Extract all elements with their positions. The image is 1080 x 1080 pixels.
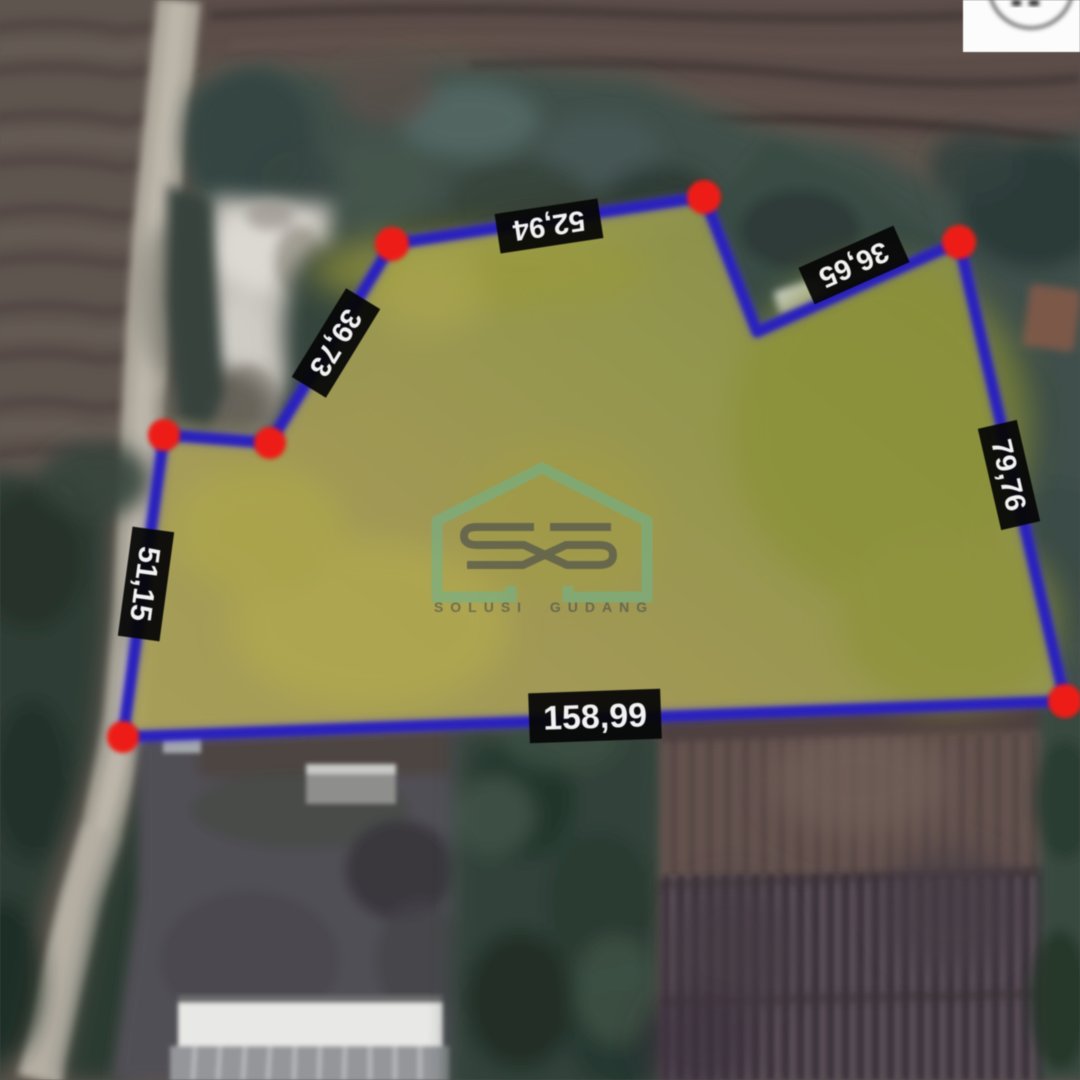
svg-text:SOLUSI: SOLUSI bbox=[434, 599, 528, 615]
svg-text:GUDANG: GUDANG bbox=[550, 599, 654, 615]
svg-text:158,99: 158,99 bbox=[542, 696, 647, 738]
